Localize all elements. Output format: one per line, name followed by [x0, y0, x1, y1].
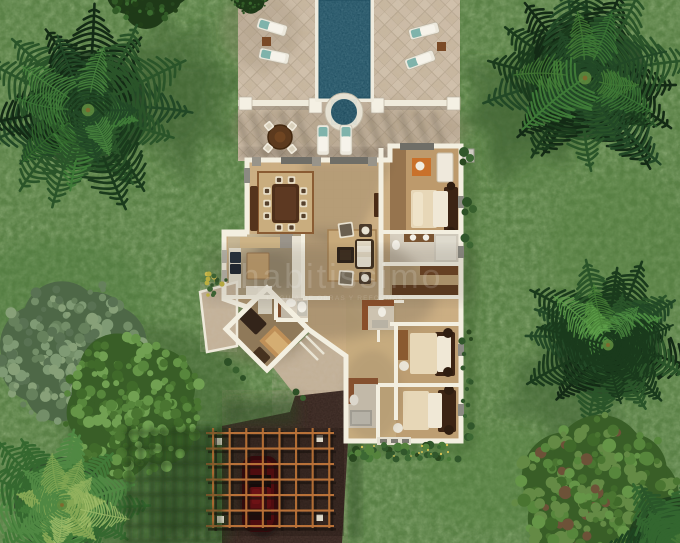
- svg-text:LA GUÍA DE OBRAS Y REFORMAS: LA GUÍA DE OBRAS Y REFORMAS: [266, 293, 403, 302]
- svg-text:habitissimo: habitissimo: [240, 258, 443, 296]
